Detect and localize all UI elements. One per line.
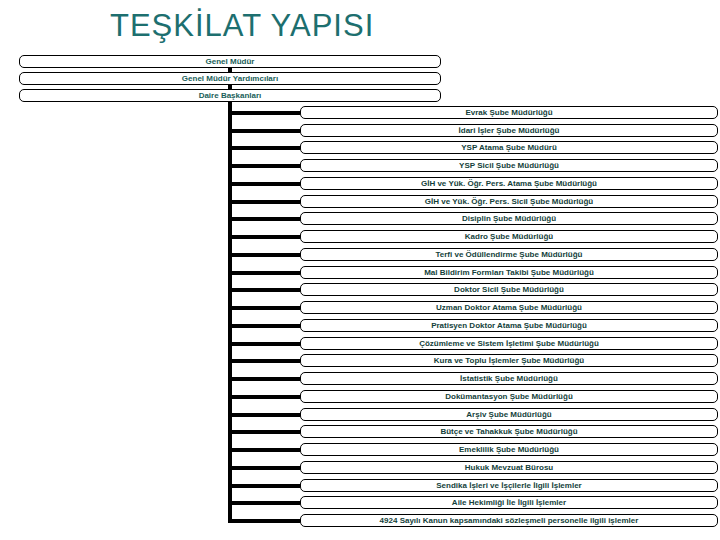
org-unit-box: Kadro Şube Müdürlüğü [300,230,718,243]
connector-stub [230,253,300,257]
org-unit-box: Doktor Sicil Şube Müdürlüğü [300,283,718,296]
connector-stub [230,217,300,221]
connector-stub [230,466,300,470]
org-unit-box: Hukuk Mevzuat Bürosu [300,461,718,474]
connector-stub [230,306,300,310]
connector-trunk [228,101,232,523]
connector-stub [230,413,300,417]
connector-stub [230,324,300,328]
level-box-daire-baskanlari: Daire Başkanları [19,89,441,102]
level-box-genel-mudur-yardimcilari: Genel Müdür Yardımcıları [19,72,441,85]
connector-stub [230,342,300,346]
org-unit-row: Doktor Sicil Şube Müdürlüğü [0,283,720,297]
org-unit-row: Sendika İşleri ve İşçilerle İlgili İşlem… [0,479,720,493]
org-unit-box: YSP Atama Şube Müdürü [300,141,718,154]
connector-stub [230,484,300,488]
connector-stub [230,182,300,186]
connector-stub [230,395,300,399]
connector-stub [230,359,300,363]
org-unit-row: YSP Sicil Şube Müdürlüğü [0,159,720,173]
org-unit-row: Hukuk Mevzuat Bürosu [0,461,720,475]
org-unit-row: Kadro Şube Müdürlüğü [0,230,720,244]
org-unit-row: Terfi ve Ödüllendirme Şube Müdürlüğü [0,248,720,262]
org-unit-row: Uzman Doktor Atama Şube Müdürlüğü [0,301,720,315]
connector-stub [230,377,300,381]
org-unit-row: YSP Atama Şube Müdürü [0,141,720,155]
org-unit-box: Dokümantasyon Şube Müdürlüğü [300,390,718,403]
org-unit-row: Disiplin Şube Müdürlüğü [0,212,720,226]
connector-stub [230,146,300,150]
org-unit-row: Çözümleme ve Sistem İşletimi Şube Müdürl… [0,337,720,351]
org-chart-slide: TEŞKİLAT YAPISI Genel Müdür Genel Müdür … [0,0,720,540]
org-unit-box: Pratisyen Doktor Atama Şube Müdürlüğü [300,319,718,332]
connector-stub [230,200,300,204]
org-unit-box: Evrak Şube Müdürlüğü [300,106,718,119]
level-box-genel-mudur: Genel Müdür [19,55,441,68]
org-unit-box: İstatistik Şube Müdürlüğü [300,372,718,385]
org-unit-row: Aile Hekimliği İle İlgili İşlemler [0,496,720,510]
org-unit-row: Kura ve Toplu İşlemler Şube Müdürlüğü [0,354,720,368]
org-unit-row: GİH ve Yük. Öğr. Pers. Atama Şube Müdürl… [0,177,720,191]
org-unit-row: İdari İşler Şube Müdürlüğü [0,124,720,138]
connector-stub [230,111,300,115]
org-unit-box: İdari İşler Şube Müdürlüğü [300,124,718,137]
org-unit-box: GİH ve Yük. Öğr. Pers. Atama Şube Müdürl… [300,177,718,190]
connector-stub [230,519,300,523]
org-unit-box: Emeklilik Şube Müdürlüğü [300,443,718,456]
connector-stub [230,288,300,292]
org-unit-box: Bütçe ve Tahakkuk Şube Müdürlüğü [300,425,718,438]
org-unit-box: Mal Bildirim Formları Takibi Şube Müdürl… [300,266,718,279]
org-unit-row: İstatistik Şube Müdürlüğü [0,372,720,386]
connector-stub [230,501,300,505]
org-unit-box: 4924 Sayılı Kanun kapsamındaki sözleşmel… [300,514,718,527]
org-unit-row: Arşiv Şube Müdürlüğü [0,408,720,422]
org-unit-box: Kura ve Toplu İşlemler Şube Müdürlüğü [300,354,718,367]
connector-stub [230,164,300,168]
connector-stub [230,271,300,275]
org-unit-row: Bütçe ve Tahakkuk Şube Müdürlüğü [0,425,720,439]
page-title: TEŞKİLAT YAPISI [110,8,374,44]
org-unit-row: Emeklilik Şube Müdürlüğü [0,443,720,457]
org-unit-box: Aile Hekimliği İle İlgili İşlemler [300,496,718,509]
connector-stub [230,235,300,239]
org-unit-row: Evrak Şube Müdürlüğü [0,106,720,120]
org-unit-row: Mal Bildirim Formları Takibi Şube Müdürl… [0,266,720,280]
org-unit-box: YSP Sicil Şube Müdürlüğü [300,159,718,172]
org-unit-row: Dokümantasyon Şube Müdürlüğü [0,390,720,404]
org-unit-box: Arşiv Şube Müdürlüğü [300,408,718,421]
org-unit-row: GİH ve Yük. Öğr. Pers. Sicil Şube Müdürl… [0,195,720,209]
connector-stub [230,129,300,133]
org-unit-box: Disiplin Şube Müdürlüğü [300,212,718,225]
org-unit-row: Pratisyen Doktor Atama Şube Müdürlüğü [0,319,720,333]
connector-stub [230,430,300,434]
org-unit-box: Sendika İşleri ve İşçilerle İlgili İşlem… [300,479,718,492]
org-unit-box: Uzman Doktor Atama Şube Müdürlüğü [300,301,718,314]
org-unit-box: Çözümleme ve Sistem İşletimi Şube Müdürl… [300,337,718,350]
org-unit-box: Terfi ve Ödüllendirme Şube Müdürlüğü [300,248,718,261]
org-unit-row: 4924 Sayılı Kanun kapsamındaki sözleşmel… [0,514,720,528]
connector-stub [230,448,300,452]
org-unit-box: GİH ve Yük. Öğr. Pers. Sicil Şube Müdürl… [300,195,718,208]
